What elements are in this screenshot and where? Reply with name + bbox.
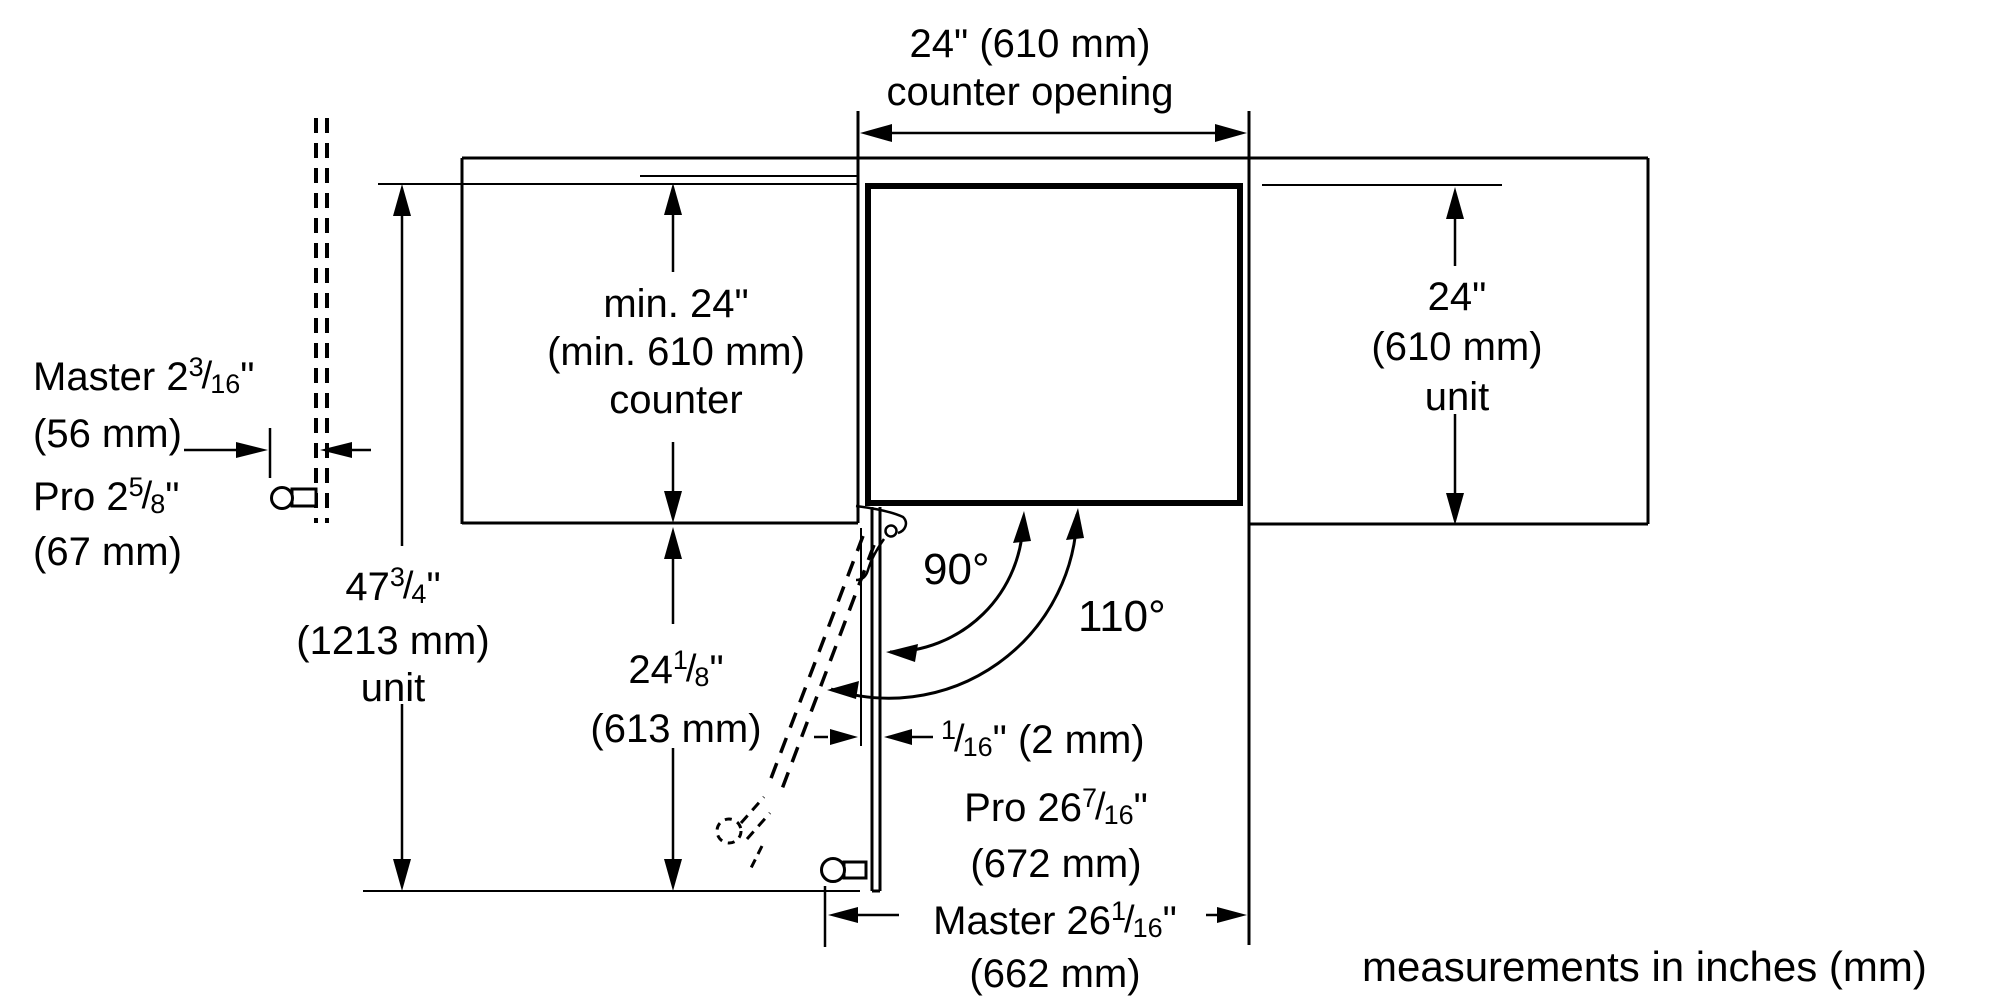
counter-opening-label: 24" (610 mm) counter opening [887,20,1174,116]
pro-clearance-label: Pro 267/16" (672 mm) [964,774,1148,889]
door-angle-90-label: 90° [923,546,990,594]
reveal-gap-label: 1/16" (2 mm) [941,706,1145,771]
counter-opening-dimension [860,124,1247,142]
swing-arc-110 [827,508,1084,699]
unit-depth-label: 24" (610 mm) unit [1371,272,1542,422]
units-note: measurements in inches (mm) [1362,944,1927,990]
counter-depth-label: min. 24" (min. 610 mm) counter [547,280,805,424]
unit-height-label: 473/4" (1213 mm) unit [296,554,489,712]
door-angle-110-label: 110° [1078,593,1166,641]
master-offset-label: Master 23/16" (56 mm) [33,342,254,459]
unit-rect [868,186,1240,503]
panel-detail [184,118,371,523]
panel-handle-stem [292,489,316,506]
door-110-handle-dashed [717,797,770,872]
door-open-110-dashed [770,536,874,789]
pro-offset-label: Pro 25/8" (67 mm) [33,463,182,576]
door-projection-label: 241/8" (613 mm) [590,634,761,755]
unit-height-dimension [393,184,411,891]
reference-lines [363,176,1502,891]
installation-diagram: 24" (610 mm) counter opening min. 24" (m… [0,0,2000,1000]
panel-handle-knob [272,488,293,509]
master-clearance-label: Master 261/16" (662 mm) [933,888,1177,997]
door-handle [822,859,867,882]
